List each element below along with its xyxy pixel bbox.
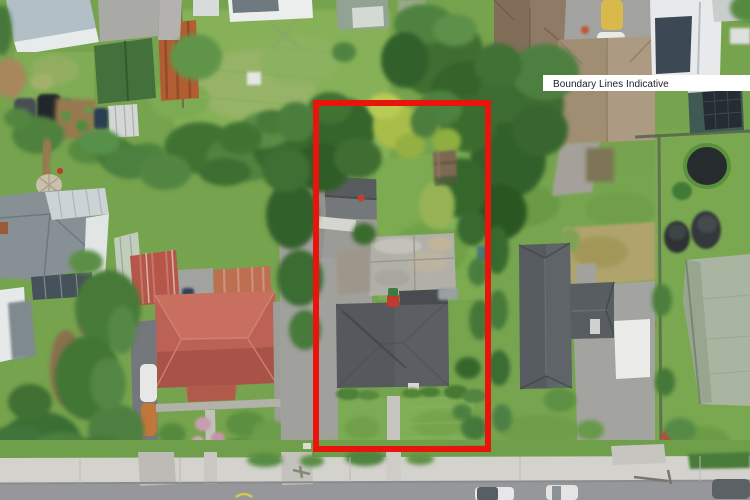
svg-text:Boundary Lines Indicative: Boundary Lines Indicative xyxy=(553,79,669,90)
